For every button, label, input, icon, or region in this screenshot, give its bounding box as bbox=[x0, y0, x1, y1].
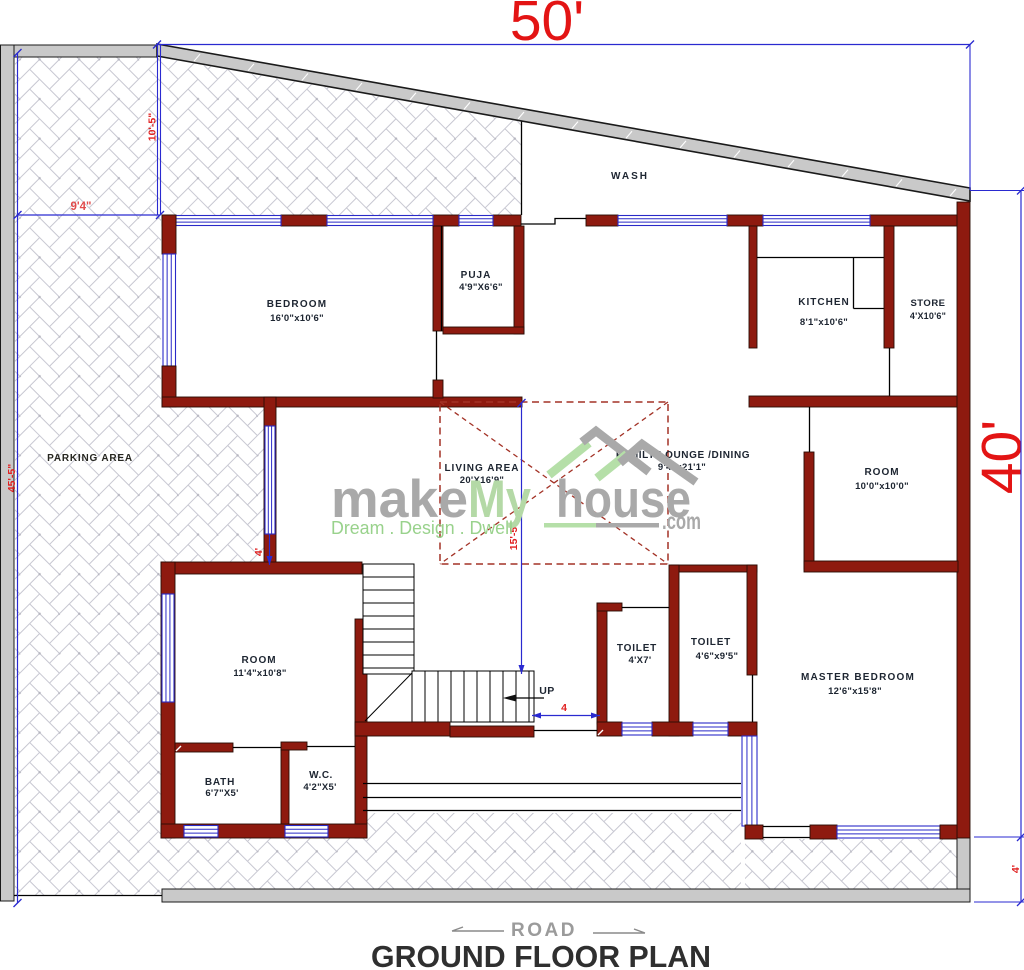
svg-text:GROUND FLOOR PLAN: GROUND FLOOR PLAN bbox=[371, 940, 711, 970]
svg-text:4'X7': 4'X7' bbox=[629, 655, 652, 666]
svg-text:.com: .com bbox=[662, 508, 701, 534]
svg-text:9'4": 9'4" bbox=[71, 201, 92, 213]
svg-text:BATH: BATH bbox=[205, 777, 235, 788]
svg-text:4'6"x9'5": 4'6"x9'5" bbox=[696, 651, 739, 662]
svg-text:6'7"X5': 6'7"X5' bbox=[205, 788, 238, 799]
svg-text:ROAD: ROAD bbox=[511, 920, 577, 941]
svg-text:ROOM: ROOM bbox=[241, 655, 276, 666]
svg-text:11'4"x10'8": 11'4"x10'8" bbox=[233, 668, 286, 679]
svg-text:4': 4' bbox=[1010, 865, 1022, 873]
svg-text:4'9"X6'6": 4'9"X6'6" bbox=[459, 282, 503, 293]
svg-text:TOILET: TOILET bbox=[617, 643, 657, 654]
svg-text:16'0"x10'6": 16'0"x10'6" bbox=[270, 313, 324, 324]
svg-text:KITCHEN: KITCHEN bbox=[798, 297, 849, 308]
svg-text:4: 4 bbox=[561, 702, 567, 714]
svg-text:45'-5": 45'-5" bbox=[6, 464, 18, 493]
svg-text:PUJA: PUJA bbox=[461, 270, 492, 281]
svg-text:4'2"X5': 4'2"X5' bbox=[303, 782, 336, 793]
svg-text:10'0"x10'0": 10'0"x10'0" bbox=[855, 481, 909, 492]
svg-text:W.C.: W.C. bbox=[309, 770, 333, 781]
svg-text:8'1"x10'6": 8'1"x10'6" bbox=[800, 317, 848, 328]
svg-text:ROOM: ROOM bbox=[864, 467, 899, 478]
svg-text:Dream . Design . Dwell: Dream . Design . Dwell bbox=[331, 518, 513, 538]
svg-text:PARKING AREA: PARKING AREA bbox=[47, 453, 133, 464]
svg-text:10'-5": 10'-5" bbox=[147, 113, 159, 142]
svg-text:12'6"x15'8": 12'6"x15'8" bbox=[828, 686, 882, 697]
svg-text:BEDROOM: BEDROOM bbox=[267, 299, 328, 310]
svg-text:STORE: STORE bbox=[910, 298, 945, 309]
svg-text:TOILET: TOILET bbox=[691, 637, 731, 648]
svg-text:UP: UP bbox=[539, 685, 555, 697]
svg-text:4'X10'6": 4'X10'6" bbox=[910, 311, 946, 321]
svg-text:40': 40' bbox=[970, 420, 1024, 494]
svg-text:WASH: WASH bbox=[611, 171, 649, 182]
svg-text:4': 4' bbox=[253, 548, 265, 556]
svg-text:MASTER BEDROOM: MASTER BEDROOM bbox=[801, 672, 915, 683]
